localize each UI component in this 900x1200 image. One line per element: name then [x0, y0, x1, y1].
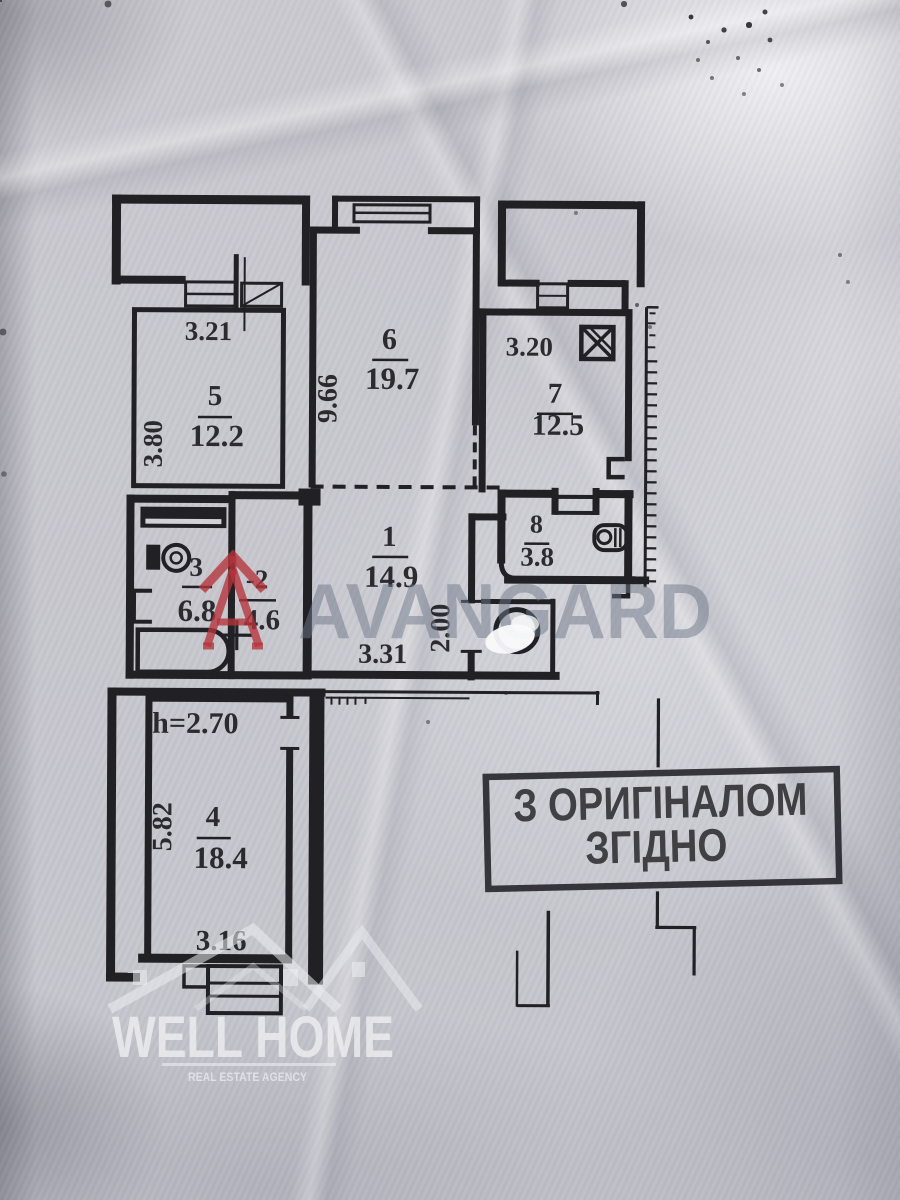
dim-room6-depth: 9.66 [312, 374, 343, 423]
room-7-number: 7 [548, 378, 563, 410]
room-1-number: 1 [382, 521, 397, 553]
wellhome-subtitle: REAL ESTATE AGENCY [188, 1072, 307, 1084]
stamp-line2: ЗГІДНО [585, 819, 728, 874]
wellhome-divider [162, 1063, 336, 1066]
scanned-floor-plan-page: 3.21 3.80 5 12.2 9.66 6 19.7 3.20 7 12.5… [0, 0, 900, 1200]
toilet-icon [594, 525, 627, 550]
stairwell-hatch-strip [645, 307, 658, 587]
room-6-walls [309, 196, 505, 489]
floor-plan: 3.21 3.80 5 12.2 9.66 6 19.7 3.20 7 12.5… [0, 0, 900, 1200]
watermark-blob-2 [511, 615, 539, 633]
room-8-number: 8 [530, 510, 543, 539]
balcony-top-left [112, 194, 311, 312]
vent-shaft-icon [581, 327, 613, 359]
room-6-number: 6 [382, 323, 397, 356]
dim-room7-width: 3.20 [506, 332, 553, 362]
room-3-number: 3 [189, 552, 203, 582]
dim-room4-ceiling: h=2.70 [152, 707, 238, 740]
room-5-number: 5 [208, 380, 223, 412]
room-4-area: 18.4 [193, 840, 247, 875]
dim-room5-width: 3.21 [185, 316, 232, 346]
wellhome-watermark: WELL HOME REAL ESTATE AGENCY [110, 929, 419, 1084]
wellhome-title: WELL HOME [112, 1005, 394, 1070]
room-6-area: 19.7 [365, 361, 419, 396]
room-7-area: 12.5 [532, 409, 585, 442]
room-4-number: 4 [206, 801, 221, 833]
bathtub-icon [138, 630, 229, 672]
room-5-area: 12.2 [190, 418, 244, 453]
certification-stamp: З ОРИГІНАЛОМ ЗГІДНО [486, 769, 839, 889]
dim-room4-depth: 5.82 [147, 802, 178, 851]
wall-cabinet-icon [134, 591, 152, 622]
dim-room5-depth: 3.80 [138, 420, 168, 467]
sink-counter-icon [140, 507, 226, 528]
balcony-top-right [498, 201, 646, 315]
room-3-area: 6.8 [177, 593, 216, 628]
wc-icon [146, 545, 189, 571]
